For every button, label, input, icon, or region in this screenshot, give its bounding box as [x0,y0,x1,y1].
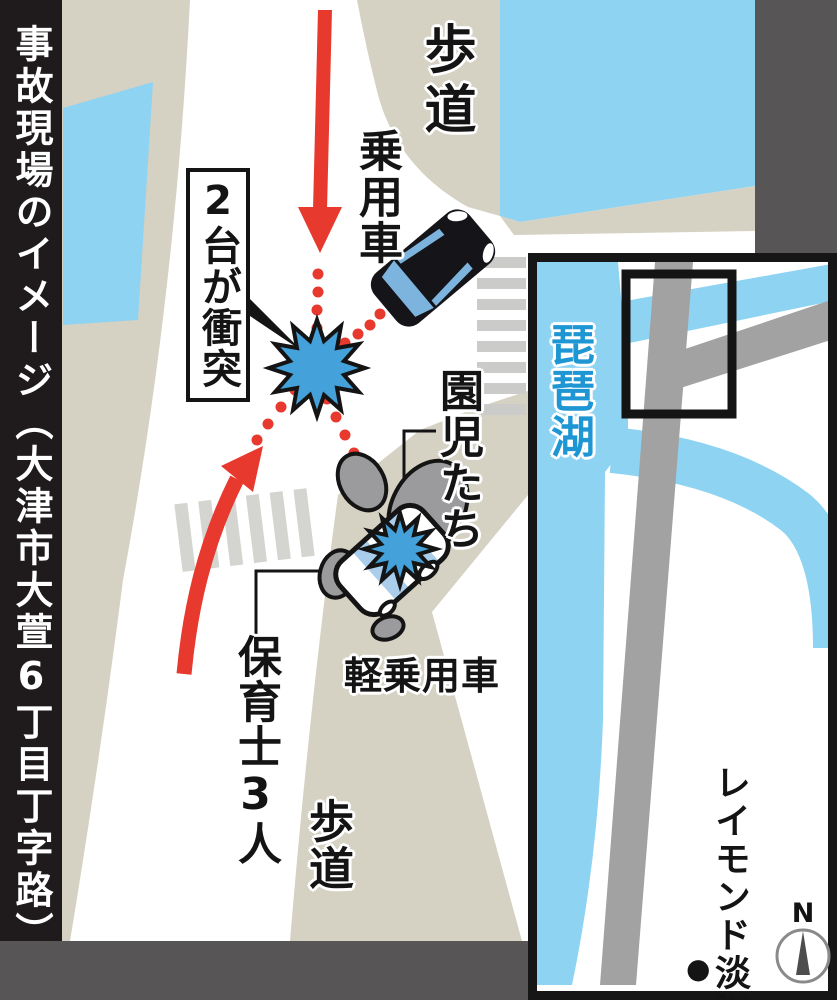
compass-north-label: N [790,898,816,929]
label-teachers: 保育士3人 [230,634,280,866]
water-top-right [500,0,755,222]
compass-icon [777,930,829,982]
building-block-topleft [63,82,153,325]
label-lake-biwa: 琵琶湖 [545,322,591,460]
bottom-band [0,941,534,1000]
label-passenger-car: 乗用車 [352,128,400,266]
label-children: 園児たち [432,368,482,552]
label-kei-car: 軽乗用車 [344,645,500,700]
dark-corner-block [755,0,837,253]
nursery-marker-dot: ● [686,952,710,985]
collision-note-text: 2台が衝突 [190,178,246,392]
collision-note-box: 2台が衝突 [186,168,250,402]
label-nursery: レイモンド淡海保育園 [652,764,752,962]
page-title: 事故現場のイメージ（大津市大萱6丁目丁字路） [0,0,62,941]
label-sidewalk-bottom: 歩道 [302,798,352,892]
title-bar: 事故現場のイメージ（大津市大萱6丁目丁字路） [0,0,62,941]
accident-diagram: 事故現場のイメージ（大津市大萱6丁目丁字路） 歩道 乗用車 2台が衝突 園児たち… [0,0,837,1000]
label-sidewalk-top: 歩道 [416,22,474,142]
